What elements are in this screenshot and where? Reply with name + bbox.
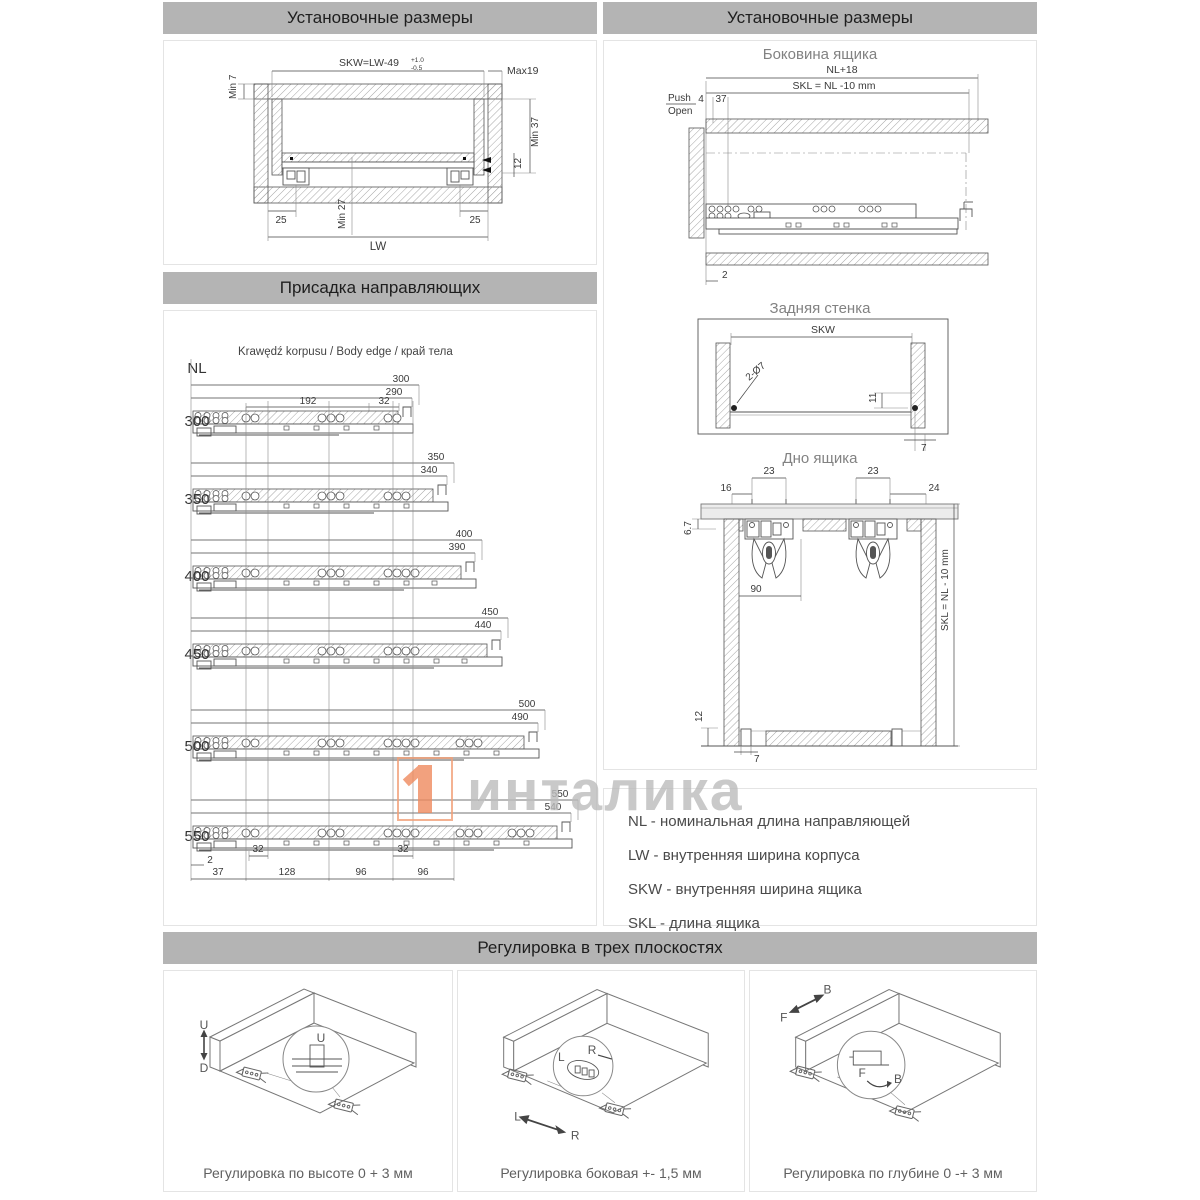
dim-min37: Min 37 xyxy=(530,117,541,147)
dim-32: 32 xyxy=(378,396,390,407)
dim-37: 37 xyxy=(212,867,224,878)
legend-panel: NL - номинальная длина направляющей LW -… xyxy=(603,788,1037,926)
caption-height-adjust: Регулировка по высоте 0 + 3 мм xyxy=(164,1165,452,1181)
dim-skw-formula: SKW=LW-49 xyxy=(339,57,399,69)
caption-side-adjust: Регулировка боковая +- 1,5 мм xyxy=(458,1165,744,1181)
adjust-side-panel: L R L R Регулировка боковая +- 1,5 мм xyxy=(457,970,745,1192)
dim-24: 24 xyxy=(928,483,940,494)
dim-inner: 340 xyxy=(421,465,438,476)
arrow-label-down: D xyxy=(200,1061,209,1075)
header-install-right: Установочные размеры xyxy=(603,2,1037,34)
dim-holes: 2-Ø7 xyxy=(744,360,768,383)
arrow-label-back: B xyxy=(823,983,831,997)
drawer-bottom-title: Дно ящика xyxy=(782,450,858,467)
dim-skw-tol-plus: +1.0 xyxy=(411,57,424,64)
adjust-depth-panel: F B B F Регулировка по глубине 0 -+ 3 мм xyxy=(749,970,1037,1192)
dim-2: 2 xyxy=(207,855,213,866)
dim-2s: 2 xyxy=(722,270,728,281)
nl-value: 450 xyxy=(184,646,209,663)
dim-37s: 37 xyxy=(715,94,727,105)
rail-row-550: 550 540 550 xyxy=(184,789,578,851)
dim-25-left: 25 xyxy=(275,215,287,226)
arrow-label-right: R xyxy=(571,1128,580,1142)
dim-12b: 12 xyxy=(694,710,705,722)
dim-96a: 96 xyxy=(355,867,367,878)
nl-column-label: NL xyxy=(187,360,206,377)
dim-max19: Max19 xyxy=(507,65,539,77)
label-push: Push xyxy=(668,93,691,104)
dim-inner: 490 xyxy=(512,712,529,723)
dim-90: 90 xyxy=(750,584,762,595)
legend-nl: NL - номинальная длина направляющей xyxy=(628,805,1012,839)
drawer-bottom-drawing: 23 23 16 24 6.7 xyxy=(683,466,960,765)
dim-11: 11 xyxy=(868,392,879,403)
rail-row-450: 450 440 450 xyxy=(184,607,508,669)
dim-skw-tol-minus: -0.5 xyxy=(411,65,423,72)
dim-128: 128 xyxy=(279,867,296,878)
rail-row-350: 350 340 350 xyxy=(184,452,454,514)
dim-4: 4 xyxy=(698,94,704,105)
dim-inner: 390 xyxy=(449,542,466,553)
inset-label-u: U xyxy=(317,1031,326,1045)
inset-label-l: L xyxy=(558,1050,565,1064)
drilling-drawing: Krawędź korpusu / Body edge / край тела … xyxy=(164,311,596,925)
drilling-panel: Krawędź korpusu / Body edge / край тела … xyxy=(163,310,597,926)
header-install-right-label: Установочные размеры xyxy=(727,8,913,27)
caption-depth-adjust: Регулировка по глубине 0 -+ 3 мм xyxy=(750,1165,1036,1181)
label-open: Open xyxy=(668,106,692,117)
dim-23b: 23 xyxy=(867,466,879,477)
dim-outer: 450 xyxy=(482,607,499,618)
nl-value: 300 xyxy=(184,413,209,430)
dim-16: 16 xyxy=(720,483,732,494)
dim-32b: 32 xyxy=(397,844,409,855)
dim-skl-bottom: SKL = NL - 10 mm xyxy=(940,549,951,631)
arrow-label-front: F xyxy=(780,1010,787,1024)
legend-skl: SKL - длина ящика xyxy=(628,907,1012,941)
dim-min7: Min 7 xyxy=(228,74,239,99)
dim-67: 6.7 xyxy=(683,521,694,535)
nl-value: 400 xyxy=(184,568,209,585)
dim-skw-back: SKW xyxy=(811,324,835,336)
header-drilling-label: Присадка направляющих xyxy=(280,278,481,297)
header-drilling: Присадка направляющих xyxy=(163,272,597,304)
dim-outer: 350 xyxy=(428,452,445,463)
dim-lw: LW xyxy=(370,241,387,253)
nl-value: 550 xyxy=(184,828,209,845)
nl-value: 350 xyxy=(184,491,209,508)
rail-row-300: 300 290 192 32 300 xyxy=(184,374,419,436)
cabinet-section-drawing: SKW=LW-49 +1.0 -0.5 Max19 Min 7 Min 37 1… xyxy=(164,41,596,264)
dim-nl18: NL+18 xyxy=(826,64,857,76)
dim-skl: SKL = NL -10 mm xyxy=(793,80,876,92)
dim-192: 192 xyxy=(300,396,317,407)
lock-device-right xyxy=(849,519,897,578)
legend-lw: LW - внутренняя ширина корпуса xyxy=(628,839,1012,873)
inset-label-b: B xyxy=(894,1072,902,1086)
dim-min27: Min 27 xyxy=(337,199,348,229)
dim-25-right: 25 xyxy=(469,215,481,226)
dim-96b: 96 xyxy=(417,867,429,878)
lock-device-left xyxy=(745,519,793,578)
adjust-height-panel: U U D Регулировка по высоте 0 + 3 мм xyxy=(163,970,453,1192)
rail-row-400: 400 390 400 xyxy=(184,529,482,591)
nl-value: 500 xyxy=(184,738,209,755)
back-wall-drawing: SKW 2-Ø7 11 7 xyxy=(698,319,948,454)
dim-outer: 400 xyxy=(456,529,473,540)
reference-lines xyxy=(191,359,454,881)
bottom-dims: 2 32 32 37 128 96 96 xyxy=(191,844,454,879)
back-wall-title: Задняя стенка xyxy=(770,300,872,317)
dim-inner: 540 xyxy=(545,802,562,813)
dim-32a: 32 xyxy=(252,844,264,855)
legend-skw: SKW - внутренняя ширина ящика xyxy=(628,873,1012,907)
dim-inner: 440 xyxy=(475,620,492,631)
adjust-height-drawing: U U D xyxy=(164,971,452,1161)
side-panel-drawing: NL+18 SKL = NL -10 mm Push Open 4 37 xyxy=(666,64,988,285)
dim-outer: 300 xyxy=(393,374,410,385)
rail-row-500: 500 490 500 xyxy=(184,699,545,761)
adjust-side-drawing: L R L R xyxy=(458,971,744,1161)
side-panel-title: Боковина ящика xyxy=(763,46,878,63)
header-install-left-label: Установочные размеры xyxy=(287,8,473,27)
install-right-drawing: Боковина ящика NL+18 SKL = NL -10 mm Pus… xyxy=(604,41,1036,769)
inset-label-f: F xyxy=(859,1066,866,1080)
cabinet-section-panel: SKW=LW-49 +1.0 -0.5 Max19 Min 7 Min 37 1… xyxy=(163,40,597,265)
dim-outer: 550 xyxy=(552,789,569,800)
dim-7c: 7 xyxy=(754,754,760,765)
body-edge-label: Krawędź korpusu / Body edge / край тела xyxy=(238,346,453,358)
header-install-left: Установочные размеры xyxy=(163,2,597,34)
dim-23a: 23 xyxy=(763,466,775,477)
adjust-depth-drawing: F B B F xyxy=(750,971,1036,1161)
inset-label-r: R xyxy=(588,1043,597,1057)
dim-7b: 7 xyxy=(921,443,927,454)
install-right-panel: Боковина ящика NL+18 SKL = NL -10 mm Pus… xyxy=(603,40,1037,770)
dim-outer: 500 xyxy=(519,699,536,710)
dim-12: 12 xyxy=(513,157,524,169)
